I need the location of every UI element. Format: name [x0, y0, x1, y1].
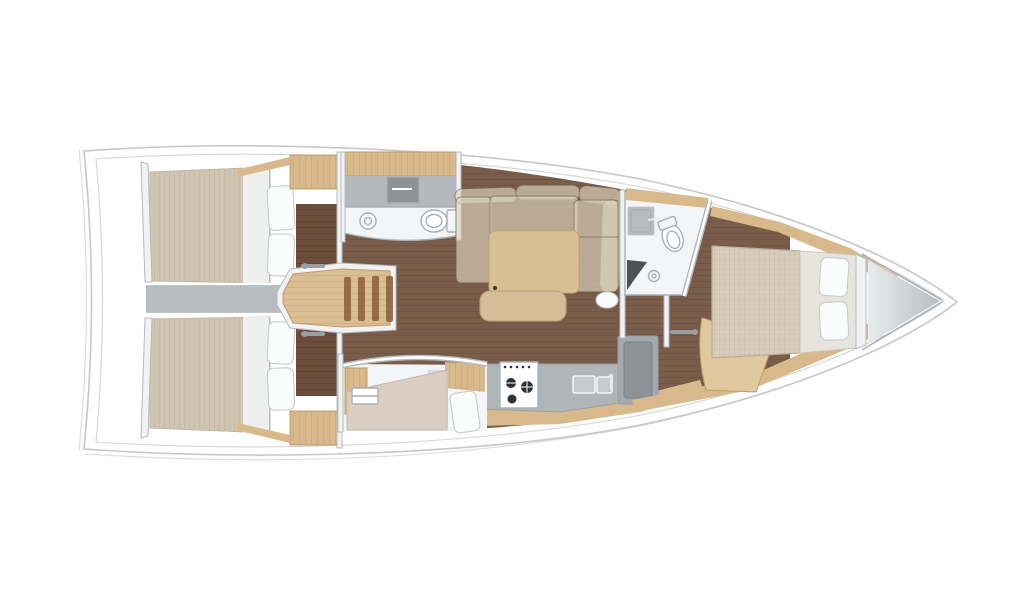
stove-knob [516, 366, 519, 369]
transom-line [79, 149, 87, 451]
stair-step [358, 277, 365, 321]
head-bulkhead-left [341, 152, 345, 242]
stair-step [372, 276, 379, 321]
bench [480, 291, 566, 321]
burner [508, 395, 517, 404]
pillow [449, 390, 480, 433]
stair-step [344, 277, 351, 321]
pillow [819, 257, 850, 297]
stove-knob [510, 366, 513, 369]
door-post [664, 293, 669, 347]
table-leg-mark [493, 286, 497, 290]
cabin-wall-end [338, 354, 343, 432]
engine-box [146, 284, 284, 314]
engine-compartment [146, 284, 284, 314]
saloon-table [489, 231, 579, 293]
sofa-seat [574, 200, 618, 292]
sofa-seat [456, 197, 492, 283]
bed-runner [243, 167, 269, 283]
door-handle [692, 329, 698, 335]
island-bed [712, 246, 800, 358]
pouf [596, 292, 618, 308]
aft-head [341, 152, 461, 242]
galley-sink [573, 374, 613, 393]
companionway [277, 263, 396, 337]
headboard [856, 254, 866, 349]
stove-knob [522, 366, 525, 369]
bulkhead-wall [620, 190, 625, 338]
stove-knob [504, 366, 507, 369]
pillow [267, 368, 294, 411]
overhead-locker [343, 152, 457, 176]
wardrobe-locker [290, 411, 338, 445]
mid-cabin-starboard [338, 354, 487, 434]
sink-basin [573, 376, 595, 393]
fridge-lid [624, 342, 652, 398]
side-locker [445, 362, 485, 392]
pillow [267, 185, 295, 230]
stove [500, 362, 538, 408]
stove-knob [528, 366, 531, 369]
toilet [421, 210, 447, 232]
yacht-floor-plan-canvas [0, 0, 1024, 600]
sink-basin [597, 377, 612, 393]
wardrobe-locker [290, 155, 338, 189]
stair-step [386, 276, 393, 322]
bed-runner [243, 317, 269, 433]
saloon [455, 185, 623, 321]
faucet [609, 374, 613, 378]
pillow [819, 301, 849, 340]
sink [360, 213, 376, 229]
yacht-floor-plan [0, 0, 1024, 600]
